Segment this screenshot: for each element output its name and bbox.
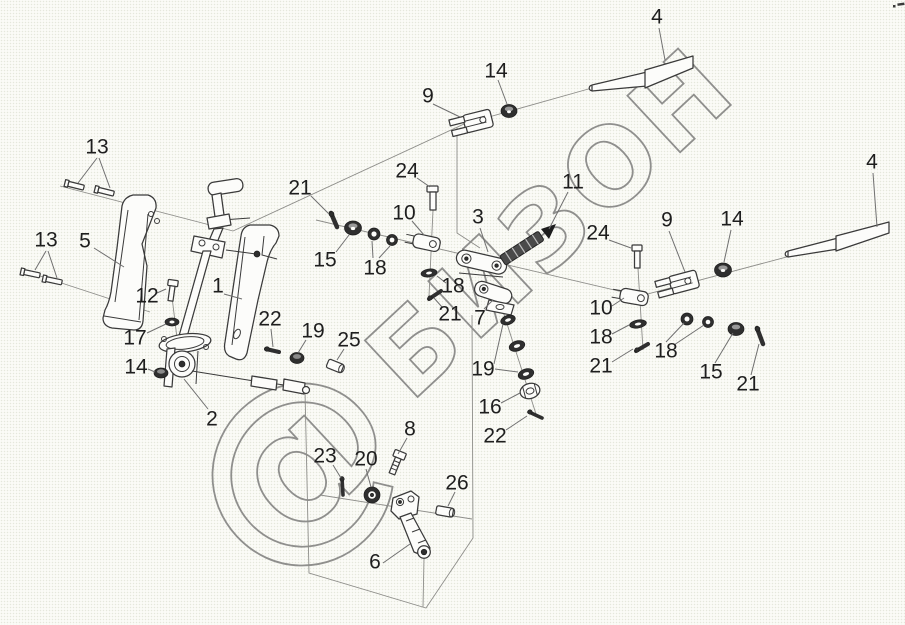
leader-line-14: [498, 80, 507, 104]
leader-line-15: [715, 333, 733, 363]
diagram-canvas: @ БИЗОН: [0, 0, 905, 625]
callout-24: 24: [586, 222, 610, 245]
callout-8: 8: [404, 418, 416, 441]
leader-line-22: [271, 329, 273, 347]
part-cover-1: [225, 225, 280, 360]
callout-3: 3: [472, 206, 484, 229]
callout-21: 21: [438, 303, 461, 326]
part-washer-20: [364, 487, 380, 503]
part-rod-2: [192, 371, 310, 394]
leader-line-15: [336, 235, 349, 252]
callout-20: 20: [354, 448, 377, 471]
leader-line-19: [494, 324, 503, 364]
corner-mark: [893, 2, 905, 7]
callout-layer: 1313512171412219252211518102431118217191…: [34, 6, 878, 574]
callout-18: 18: [589, 326, 612, 349]
leader-line-24: [417, 178, 430, 187]
part-bolt-8: [386, 449, 406, 476]
part-washers-18-right-pair: [681, 313, 714, 328]
part-washer-18-center: [421, 268, 438, 278]
callout-17: 17: [123, 327, 146, 350]
leader-line-17: [147, 324, 166, 333]
part-bolt-12: [166, 279, 179, 301]
callout-14: 14: [124, 356, 148, 379]
leader-line-14: [148, 369, 155, 372]
leader-line-9: [669, 231, 685, 272]
part-rod-11: [500, 224, 556, 265]
callout-10: 10: [589, 297, 612, 320]
callout-9: 9: [661, 209, 673, 232]
callout-5: 5: [79, 230, 91, 253]
part-sleeve-25: [326, 359, 346, 374]
callout-4: 4: [651, 6, 663, 29]
leader-line-11: [549, 192, 568, 229]
callout-14: 14: [720, 208, 744, 231]
diagram-svg: 1313512171412219252211518102431118217191…: [0, 0, 905, 625]
part-arm-6: [391, 491, 430, 558]
callout-14: 14: [484, 60, 508, 83]
callout-16: 16: [478, 396, 501, 419]
callout-13: 13: [34, 229, 57, 252]
leader-line-13: [48, 251, 57, 278]
callout-22: 22: [258, 308, 281, 331]
callout-26: 26: [445, 472, 468, 495]
leader-line-18: [674, 325, 704, 345]
callout-21: 21: [589, 355, 612, 378]
callout-11: 11: [562, 171, 584, 194]
callout-6: 6: [369, 551, 381, 574]
part-pin-26: [435, 506, 455, 518]
leader-line-18: [612, 325, 629, 334]
callout-2: 2: [206, 408, 218, 431]
leader-line-13: [99, 158, 110, 188]
callout-4: 4: [866, 151, 878, 174]
callout-18: 18: [654, 340, 677, 363]
part-nut-15-right: [728, 323, 744, 336]
callout-12: 12: [135, 285, 158, 308]
part-washers-19-column: [499, 313, 535, 381]
callout-23: 23: [313, 445, 336, 468]
callout-18: 18: [363, 257, 386, 280]
part-pin-22-left: [265, 347, 279, 352]
leader-line-19: [495, 369, 518, 372]
leader-line-14: [724, 230, 731, 262]
part-rod-4-right: [785, 222, 889, 257]
callout-22: 22: [483, 425, 506, 448]
leader-line-21: [311, 196, 329, 214]
part-pin-21-right-b: [755, 327, 763, 344]
callout-15: 15: [699, 361, 722, 384]
callout-19: 19: [471, 358, 494, 381]
part-nut-14-right: [715, 263, 732, 277]
part-nut-15-a: [345, 221, 362, 235]
part-clevis-9-right: [655, 270, 700, 298]
part-nut-14-top: [501, 105, 517, 118]
leader-line-22: [506, 416, 527, 430]
leader-line-18: [372, 241, 373, 258]
part-cover-5: [103, 195, 160, 330]
leader-line-13: [35, 251, 46, 270]
part-nut-19-left: [290, 353, 304, 364]
callout-1: 1: [212, 275, 224, 298]
part-nut-14-left: [154, 368, 168, 378]
leader-line-9: [433, 104, 460, 117]
callout-19: 19: [301, 320, 324, 343]
leader-line-20: [366, 469, 371, 487]
callout-25: 25: [337, 329, 360, 352]
leader-line-16: [501, 393, 520, 403]
callout-21: 21: [288, 177, 311, 200]
part-clevis-9-top: [449, 109, 494, 137]
part-pin-21-a: [329, 212, 337, 227]
callout-21: 21: [736, 373, 759, 396]
leader-line-13: [78, 158, 97, 183]
part-pin-23: [340, 477, 344, 495]
callout-24: 24: [395, 160, 419, 183]
leader-line-21: [751, 344, 759, 375]
part-washer-17: [165, 318, 179, 326]
callout-9: 9: [422, 85, 434, 108]
leader-line-4: [873, 173, 877, 227]
leader-line-6: [383, 544, 410, 563]
leader-line-3: [480, 228, 488, 252]
leader-line-21: [612, 349, 633, 362]
part-link-3: [455, 249, 508, 277]
part-bolt-24-left: [427, 186, 438, 210]
part-washer-18-right-single: [629, 319, 647, 330]
callout-15: 15: [313, 249, 336, 272]
callout-10: 10: [392, 202, 415, 225]
arrow-icon: [541, 224, 556, 239]
part-nut-16: [518, 381, 541, 401]
part-bolt-24-right: [632, 245, 642, 268]
callout-18: 18: [441, 275, 464, 298]
part-rod-4-top: [589, 56, 693, 91]
part-pin-21-right-a: [635, 344, 648, 352]
leader-line-4: [659, 28, 665, 60]
construction-lines: [28, 88, 888, 608]
callout-13: 13: [85, 136, 108, 159]
leader-line-24: [609, 240, 631, 248]
callout-7: 7: [474, 307, 486, 330]
